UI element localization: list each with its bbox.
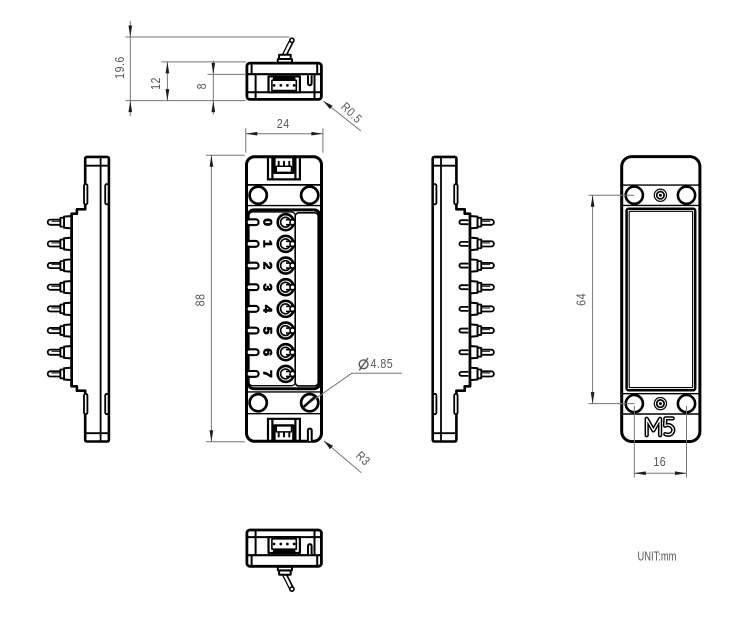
svg-text:R3: R3	[353, 449, 372, 468]
svg-text:R0.5: R0.5	[338, 101, 364, 127]
svg-text:8: 8	[194, 83, 209, 89]
svg-text:4.85: 4.85	[371, 356, 394, 371]
svg-text:16: 16	[653, 454, 666, 469]
svg-text:24: 24	[277, 116, 290, 131]
svg-text:12: 12	[148, 77, 163, 90]
svg-text:88: 88	[193, 294, 208, 307]
svg-text:19.6: 19.6	[112, 56, 127, 79]
svg-text:64: 64	[574, 293, 589, 306]
svg-text:UNIT:mm: UNIT:mm	[638, 550, 677, 564]
